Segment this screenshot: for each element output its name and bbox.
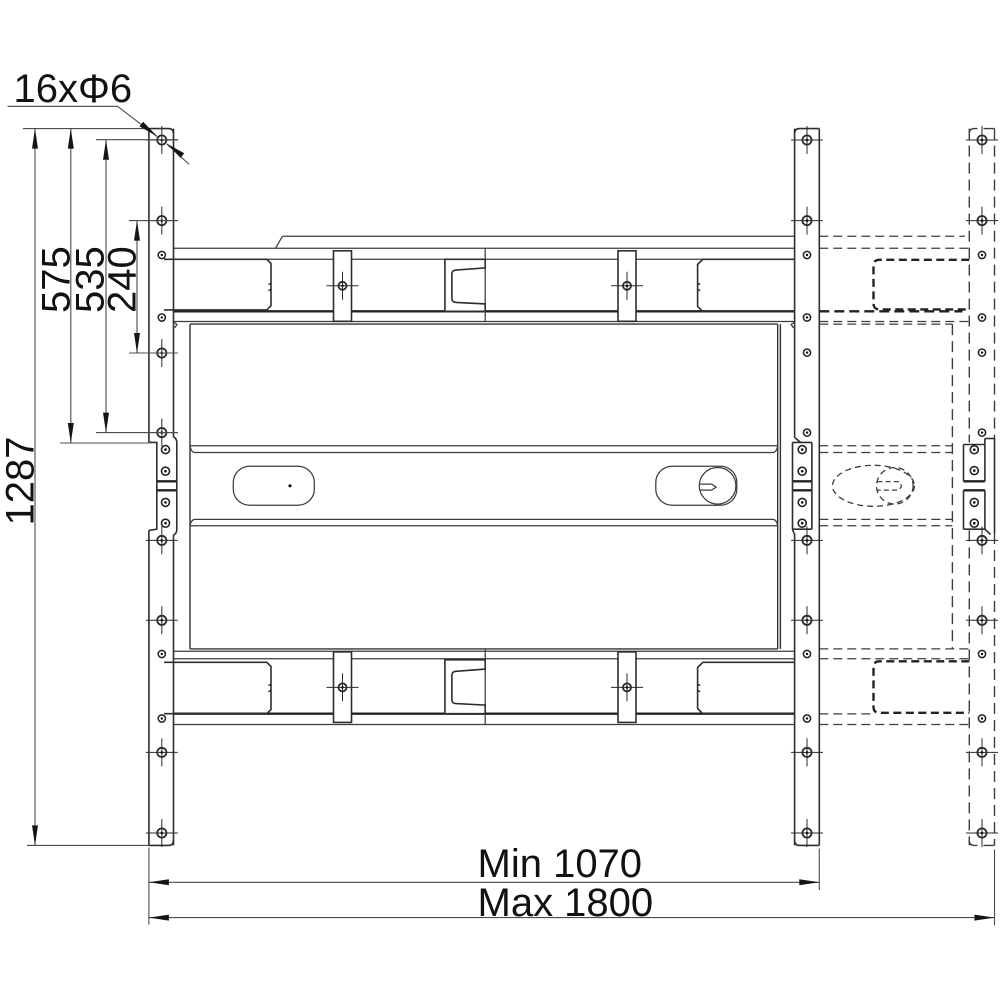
svg-text:1287: 1287 xyxy=(0,437,43,526)
svg-text:240: 240 xyxy=(101,246,145,313)
svg-text:Max 1800: Max 1800 xyxy=(478,881,654,925)
svg-text:Min 1070: Min 1070 xyxy=(478,842,643,886)
svg-text:16xΦ6: 16xΦ6 xyxy=(14,67,133,111)
